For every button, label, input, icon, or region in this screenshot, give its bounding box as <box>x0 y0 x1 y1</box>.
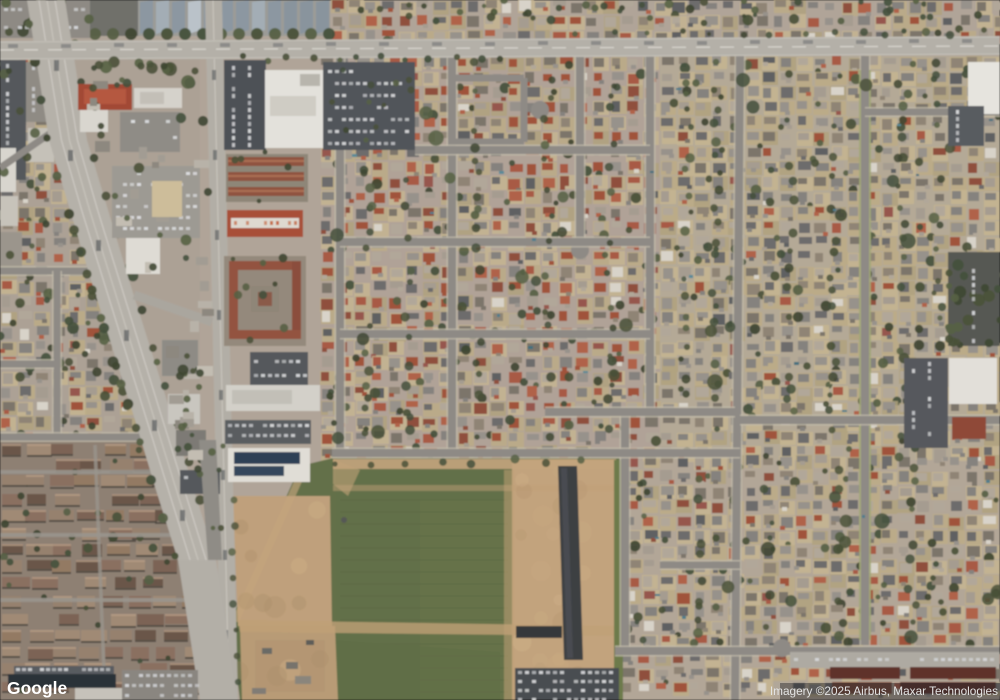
svg-text:Imagery ©2025 Airbus, Maxar Te: Imagery ©2025 Airbus, Maxar Technologies <box>770 684 998 698</box>
svg-text:Google: Google <box>7 678 68 698</box>
